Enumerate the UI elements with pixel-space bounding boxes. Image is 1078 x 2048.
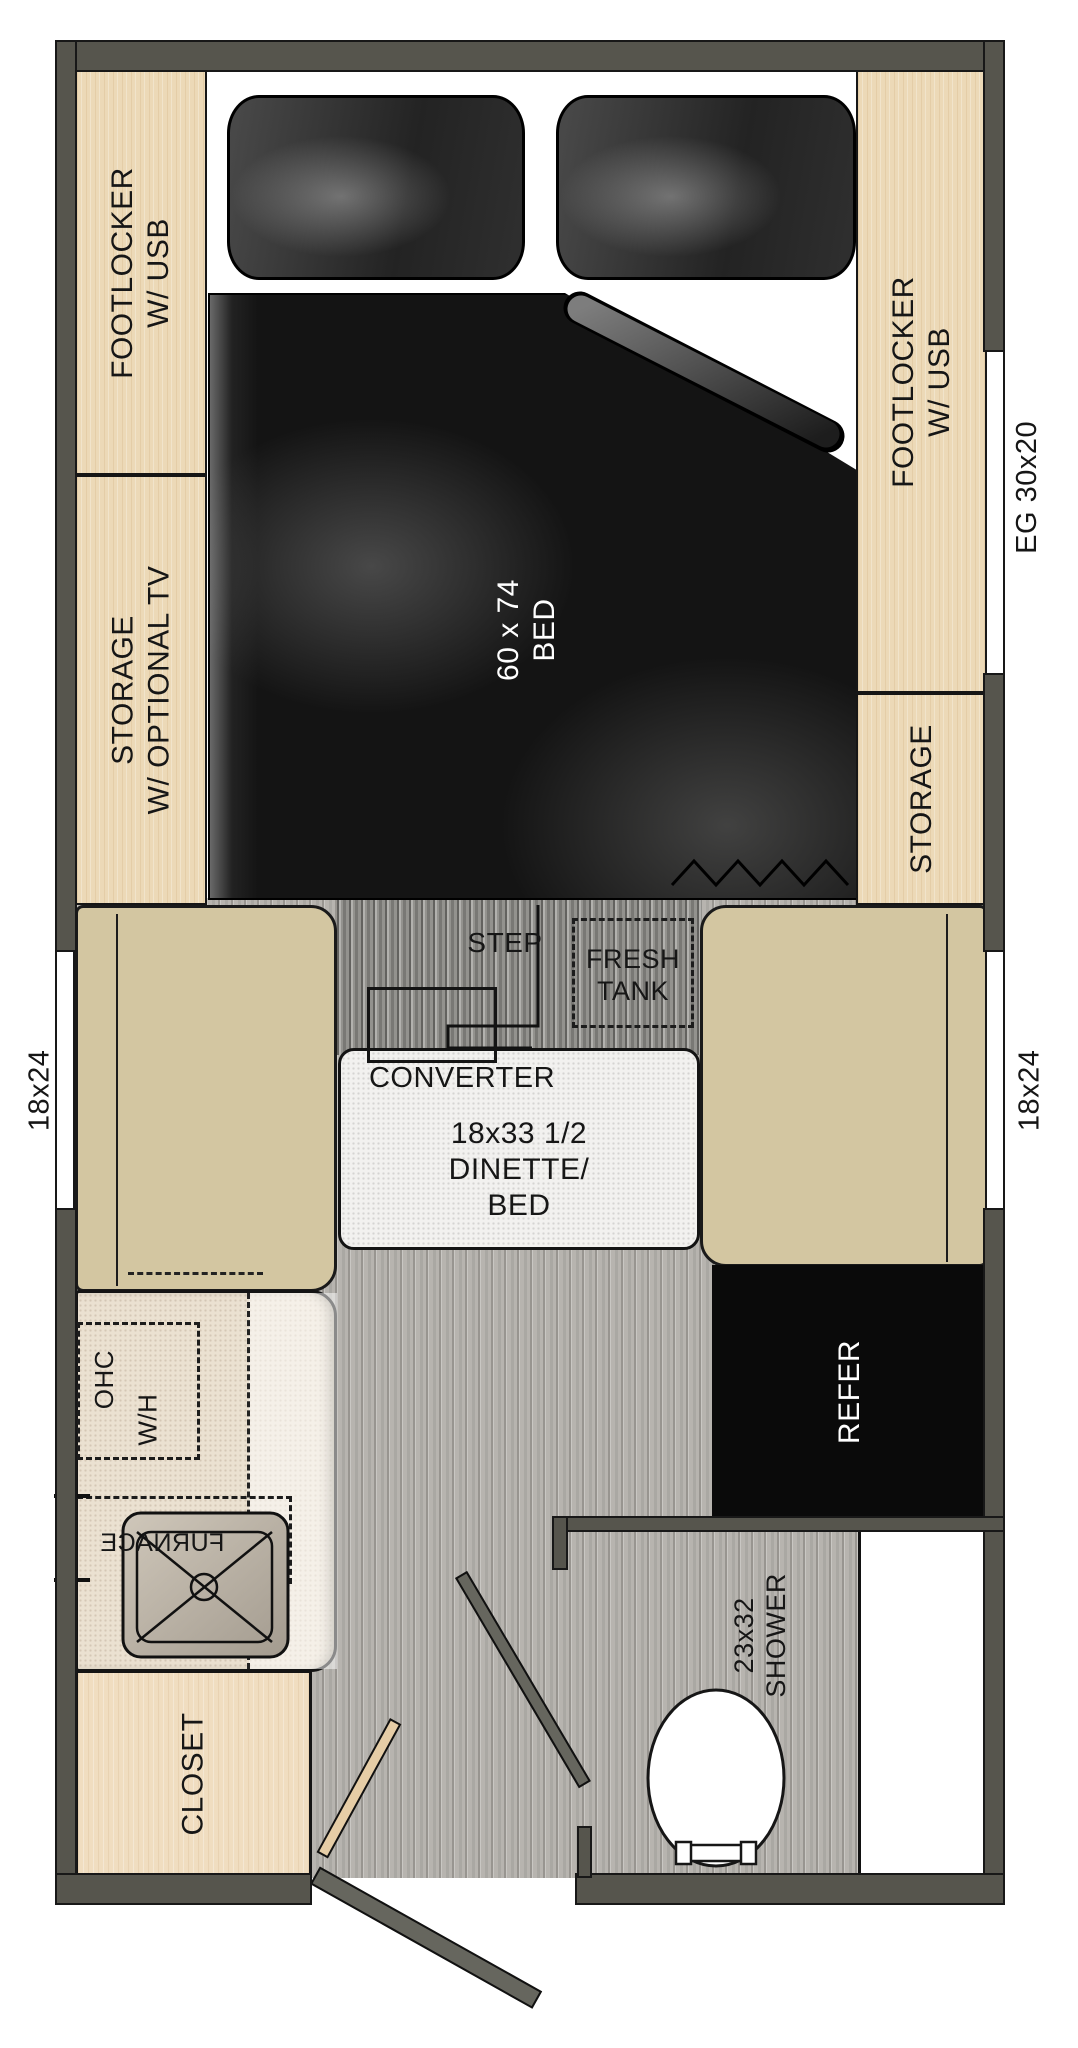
storage-left-line2: W/ OPTIONAL TV xyxy=(141,566,177,815)
closet-label: CLOSET xyxy=(176,1712,212,1835)
wall-right-upper xyxy=(983,40,1005,352)
bed-label: 60 x 74 BED xyxy=(460,525,594,735)
blanket-fold xyxy=(540,280,870,495)
wall-bath-stub xyxy=(552,1516,568,1570)
refrigerator-label: REFER xyxy=(832,1339,868,1443)
window-left-size-label: 18x24 xyxy=(8,1035,72,1145)
egress-window-label: EG 30x20 xyxy=(995,400,1059,575)
footlocker-left-line2: W/ USB xyxy=(141,167,177,379)
window-right-size-label: 18x24 xyxy=(998,1035,1062,1145)
furnace-label: FURNACE xyxy=(92,1528,232,1558)
dinette-label: 18x33 1/2 DINETTE/ BED xyxy=(348,1102,690,1237)
wall-left-upper xyxy=(55,40,77,952)
converter-outline xyxy=(367,987,497,1063)
wall-bottom-left xyxy=(55,1873,312,1905)
dinette-word2: BED xyxy=(449,1188,590,1224)
entry-door xyxy=(310,1867,542,2009)
shower-word: SHOWER xyxy=(760,1573,792,1698)
wall-bath-jamb xyxy=(577,1826,592,1878)
wall-top xyxy=(55,40,1005,72)
cabinet-storage-right: STORAGE xyxy=(856,693,988,905)
footlocker-right-line2: W/ USB xyxy=(922,276,958,488)
wall-bottom-right xyxy=(575,1873,1005,1905)
storage-left-line1: STORAGE xyxy=(105,566,141,815)
blanket-zigzag xyxy=(660,845,860,895)
seat-left-cushion-line xyxy=(116,914,118,1286)
refrigerator: REFER xyxy=(712,1265,988,1518)
fresh-tank-line1: FRESH xyxy=(586,943,680,975)
floorplan: 60 x 74 BED FOOTLOCKER W/ USB STORAGE W/… xyxy=(0,0,1078,2048)
footlocker-right-line1: FOOTLOCKER xyxy=(886,276,922,488)
pillow-right xyxy=(556,95,856,280)
dinette-seat-left xyxy=(75,905,337,1292)
closet: CLOSET xyxy=(75,1670,312,1878)
fresh-tank-line2: TANK xyxy=(586,975,680,1007)
seat-left-dashed-edge xyxy=(128,1272,263,1275)
dinette-size: 18x33 1/2 xyxy=(449,1116,590,1152)
step-label: STEP xyxy=(455,926,555,960)
bed-word: BED xyxy=(527,579,563,681)
wall-right-lower xyxy=(983,1208,1005,1905)
toilet-icon xyxy=(640,1685,795,1880)
ohc-label: OHC xyxy=(85,1335,125,1425)
dinette-seat-right xyxy=(700,905,988,1267)
wall-right-mid xyxy=(983,673,1005,952)
cabinet-footlocker-right: FOOTLOCKER W/ USB xyxy=(856,70,988,693)
footlocker-left-line1: FOOTLOCKER xyxy=(105,167,141,379)
storage-right-label: STORAGE xyxy=(904,724,940,874)
wall-bath-top xyxy=(552,1516,1005,1532)
dinette-word1: DINETTE/ xyxy=(449,1152,590,1188)
cabinet-storage-left: STORAGE W/ OPTIONAL TV xyxy=(75,475,207,905)
bath-white-area xyxy=(858,1530,988,1875)
fresh-tank-label: FRESH TANK xyxy=(572,930,694,1020)
wall-left-lower xyxy=(55,1208,77,1905)
water-heater-label: W/H xyxy=(128,1375,168,1465)
pillow-left xyxy=(227,95,525,280)
cabinet-footlocker-left: FOOTLOCKER W/ USB xyxy=(75,70,207,475)
converter-label: CONVERTER xyxy=(362,1062,562,1094)
bed-size: 60 x 74 xyxy=(491,579,527,681)
shower-size: 23x32 xyxy=(728,1573,760,1698)
seat-right-cushion-line xyxy=(946,914,948,1262)
